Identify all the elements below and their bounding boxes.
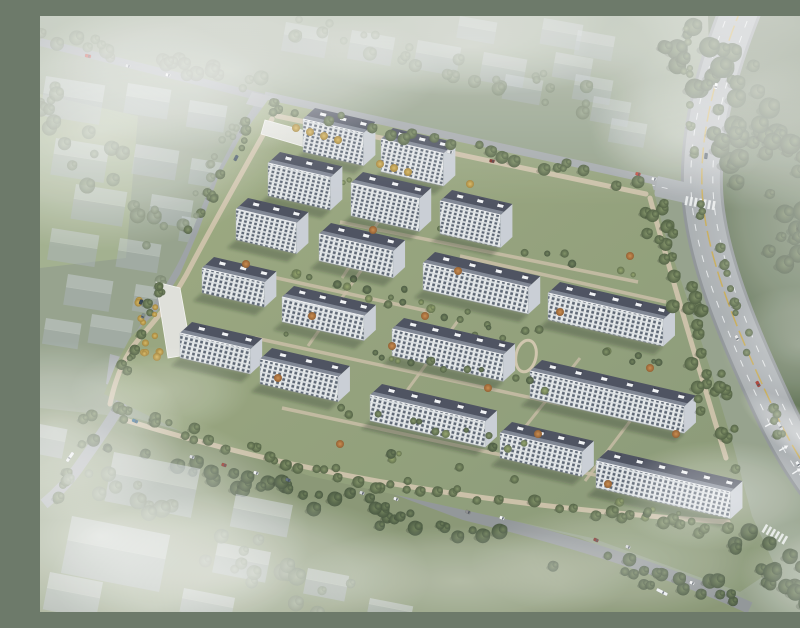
fog-haze-layer: [40, 16, 800, 612]
render-canvas: [40, 16, 800, 612]
aerial-residential-render: [40, 16, 800, 612]
